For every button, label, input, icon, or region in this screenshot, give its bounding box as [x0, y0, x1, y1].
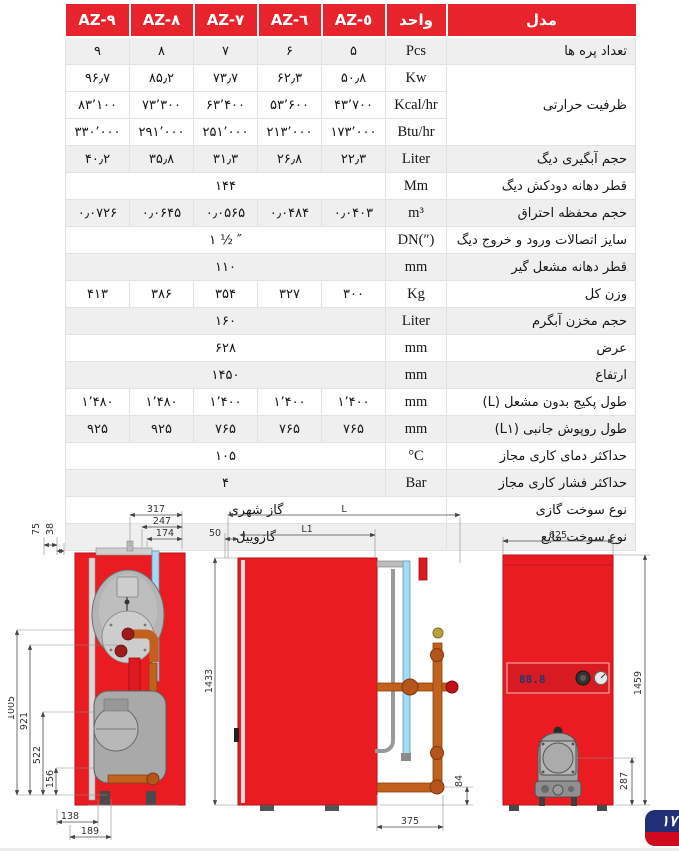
leg — [509, 805, 519, 811]
row-value-merged: ۱۴۵۰ — [66, 362, 386, 389]
row-label: سایز اتصالات ورود و خروج دیگ — [447, 227, 636, 254]
row-unit: Pcs — [386, 37, 447, 65]
stem-fitting — [125, 600, 130, 605]
pipe-elbow — [147, 773, 159, 785]
valve-handwheel — [115, 645, 127, 657]
row-value: ۸ — [130, 37, 194, 65]
row-value: ۵۰٫۸ — [322, 65, 386, 92]
dim-label: 138 — [61, 811, 79, 822]
table-row: ۱۴۴Mmقطر دهانه دودکش دیگ — [66, 173, 636, 200]
pipe-flange — [431, 649, 444, 662]
row-value: ۴۱۳ — [66, 281, 130, 308]
leg — [146, 791, 156, 805]
col-header-az9: AZ-٩ — [66, 4, 130, 37]
row-value: ۸۵٫۲ — [130, 65, 194, 92]
row-label: تعداد پره ها — [447, 37, 636, 65]
row-unit: Kw — [386, 65, 447, 92]
junction-box — [117, 577, 138, 597]
leg — [325, 805, 339, 811]
row-value: ۷۳٫۷ — [194, 65, 258, 92]
row-label: حداکثر دمای کاری مجاز — [447, 443, 636, 470]
sensor-pipe — [375, 569, 393, 751]
row-value: ۲۱۳٬۰۰۰ — [258, 119, 322, 146]
row-value: ۵ — [322, 37, 386, 65]
spec-table: AZ-٩ AZ-٨ AZ-٧ AZ-٦ AZ-٥ واحد مدل ۹۸۷۶۵P… — [65, 4, 636, 551]
table-row: ۱ ½ ″DN(″)سایز اتصالات ورود و خروج دیگ — [66, 227, 636, 254]
table-row: ۹۶٫۷۸۵٫۲۷۳٫۷۶۲٫۳۵۰٫۸Kwظرفیت حرارتی — [66, 65, 636, 92]
side-tab — [234, 728, 239, 742]
row-value: ۴۳٬۷۰۰ — [322, 92, 386, 119]
row-unit: DN(″) — [386, 227, 447, 254]
row-value-merged: ۱۶۰ — [66, 308, 386, 335]
row-value: ۳۲۷ — [258, 281, 322, 308]
row-value-merged: ۱۴۴ — [66, 173, 386, 200]
pipe-flange — [431, 747, 444, 760]
row-value: ۳۱٫۳ — [194, 146, 258, 173]
row-value: ۱٬۴۰۰ — [194, 389, 258, 416]
pipe-fitting — [401, 753, 411, 761]
dim-label: 375 — [401, 816, 419, 827]
row-label: حجم محفظه احتراق — [447, 200, 636, 227]
dim-label: 522 — [32, 746, 43, 764]
col-header-az5: AZ-٥ — [322, 4, 386, 37]
dim-label: 317 — [147, 504, 165, 515]
table-row: ۱۴۵۰mmارتفاع — [66, 362, 636, 389]
burner-foot — [539, 797, 545, 806]
housing-detail — [104, 699, 128, 711]
row-value: ۰٫۰۴۸۴ — [258, 200, 322, 227]
dim-label: 38 — [45, 523, 56, 535]
safety-pipe — [419, 558, 427, 580]
row-value: ۷۳٬۳۰۰ — [130, 92, 194, 119]
col-header-az7: AZ-٧ — [194, 4, 258, 37]
row-unit: Bar — [386, 470, 447, 497]
row-value-merged: ۴ — [66, 470, 386, 497]
temperature-display: 88.8 — [519, 673, 546, 686]
table-row: ۴۱۳۳۸۶۳۵۴۳۲۷۳۰۰Kgوزن کل — [66, 281, 636, 308]
row-value: ۰٫۰۷۲۶ — [66, 200, 130, 227]
dim-label: 287 — [619, 772, 630, 790]
row-value: ۷۶۵ — [194, 416, 258, 443]
dim-label: 189 — [81, 826, 99, 837]
row-unit: Mm — [386, 173, 447, 200]
copper-riser — [433, 643, 442, 791]
cold-water-pipe — [403, 561, 410, 757]
valve-handwheel — [122, 628, 134, 640]
row-value: ۶ — [258, 37, 322, 65]
row-label: طول پکیج بدون مشعل (L) — [447, 389, 636, 416]
burner-detail — [553, 785, 563, 795]
row-label: وزن کل — [447, 281, 636, 308]
drawing-front-view: 88.8 625 287 1459 — [483, 503, 679, 851]
row-unit: Kg — [386, 281, 447, 308]
dim-label: 1459 — [633, 671, 644, 695]
burner-detail — [541, 785, 549, 793]
badge-red-stripe — [645, 832, 679, 846]
row-unit: mm — [386, 362, 447, 389]
row-label: حداکثر فشار کاری مجاز — [447, 470, 636, 497]
leg — [260, 805, 274, 811]
row-unit: Kcal/hr — [386, 92, 447, 119]
row-value: ۳۳۰٬۰۰۰ — [66, 119, 130, 146]
row-value: ۰٫۰۵۶۵ — [194, 200, 258, 227]
dim-label: 174 — [156, 528, 174, 539]
row-value: ۲۹۱٬۰۰۰ — [130, 119, 194, 146]
row-unit: mm — [386, 389, 447, 416]
row-value: ۱٬۴۰۰ — [258, 389, 322, 416]
col-header-unit: واحد — [386, 4, 447, 37]
row-value: ۱٬۴۸۰ — [130, 389, 194, 416]
row-label: قطر دهانه دودکش دیگ — [447, 173, 636, 200]
row-unit: °C — [386, 443, 447, 470]
row-value: ۲۵۱٬۰۰۰ — [194, 119, 258, 146]
col-header-az8: AZ-٨ — [130, 4, 194, 37]
row-value: ۷ — [194, 37, 258, 65]
burner-detail — [568, 786, 574, 792]
row-value: ۶۲٫۳ — [258, 65, 322, 92]
row-unit: Liter — [386, 308, 447, 335]
row-value: ۰٫۰۶۴۵ — [130, 200, 194, 227]
row-label: حجم آبگیری دیگ — [447, 146, 636, 173]
row-value-merged: ۱۰۵ — [66, 443, 386, 470]
pipe-elbow — [430, 780, 444, 794]
row-value: ۲۲٫۳ — [322, 146, 386, 173]
valve-body — [402, 679, 418, 695]
body-edge-strip — [241, 560, 245, 803]
row-value: ۴۰٫۲ — [66, 146, 130, 173]
row-value: ۲۶٫۸ — [258, 146, 322, 173]
row-value: ۹۶٫۷ — [66, 65, 130, 92]
row-unit: m³ — [386, 200, 447, 227]
catalog-page: AZ-٩ AZ-٨ AZ-٧ AZ-٦ AZ-٥ واحد مدل ۹۸۷۶۵P… — [0, 0, 679, 851]
burner-foot — [571, 797, 577, 806]
dim-label: 156 — [45, 770, 56, 788]
dim-label: 75 — [31, 523, 42, 535]
leg — [100, 791, 110, 805]
row-value: ۹ — [66, 37, 130, 65]
drawing-rear-view: 317 247 174 75 38 1005 921 522 156 138 — [8, 503, 208, 851]
row-unit: mm — [386, 254, 447, 281]
row-value: ۳۰۰ — [322, 281, 386, 308]
spec-table-header: AZ-٩ AZ-٨ AZ-٧ AZ-٦ AZ-٥ واحد مدل — [66, 4, 636, 37]
page-number-badge: ۱۷ — [645, 810, 679, 846]
row-value: ۱٬۴۰۰ — [322, 389, 386, 416]
row-unit: mm — [386, 335, 447, 362]
row-label: حجم مخزن آبگرم — [447, 308, 636, 335]
row-value-merged: ۱ ½ ″ — [66, 227, 386, 254]
page-number: ۱۷ — [645, 810, 679, 832]
row-unit: Liter — [386, 146, 447, 173]
table-row: ۱۶۰Literحجم مخزن آبگرم — [66, 308, 636, 335]
table-row: ۱۰۵°Cحداکثر دمای کاری مجاز — [66, 443, 636, 470]
row-value-merged: ۱۱۰ — [66, 254, 386, 281]
row-value: ۵۳٬۶۰۰ — [258, 92, 322, 119]
row-label: عرض — [447, 335, 636, 362]
dim-label: 247 — [153, 516, 171, 527]
row-label: ظرفیت حرارتی — [447, 65, 636, 146]
dim-label: 1433 — [205, 669, 215, 693]
row-value: ۰٫۰۴۰۳ — [322, 200, 386, 227]
row-value: ۳۸۶ — [130, 281, 194, 308]
table-row: ۴۰٫۲۳۵٫۸۳۱٫۳۲۶٫۸۲۲٫۳Literحجم آبگیری دیگ — [66, 146, 636, 173]
table-row: ۹۲۵۹۲۵۷۶۵۷۶۵۷۶۵mmطول روپوش جانبی (L۱) — [66, 416, 636, 443]
col-header-az6: AZ-٦ — [258, 4, 322, 37]
spec-table-body: ۹۸۷۶۵Pcsتعداد پره ها۹۶٫۷۸۵٫۲۷۳٫۷۶۲٫۳۵۰٫۸… — [66, 37, 636, 551]
row-unit: mm — [386, 416, 447, 443]
dim-label: 50 — [209, 528, 221, 539]
row-label: قطر دهانه مشعل گیر — [447, 254, 636, 281]
table-row: ۱٬۴۸۰۱٬۴۸۰۱٬۴۰۰۱٬۴۰۰۱٬۴۰۰mmطول پکیج بدون… — [66, 389, 636, 416]
row-value: ۷۶۵ — [258, 416, 322, 443]
row-label: ارتفاع — [447, 362, 636, 389]
burner-port — [543, 743, 573, 773]
drawing-side-view: L L1 50 1433 375 84 — [205, 503, 480, 851]
table-row: ۹۸۷۶۵Pcsتعداد پره ها — [66, 37, 636, 65]
table-row: ۰٫۰۷۲۶۰٫۰۶۴۵۰٫۰۵۶۵۰٫۰۴۸۴۰٫۰۴۰۳m³حجم محفظ… — [66, 200, 636, 227]
row-value: ۳۵٫۸ — [130, 146, 194, 173]
boiler-body — [238, 558, 377, 805]
valve-handwheel — [446, 681, 458, 693]
row-value: ۸۳٬۱۰۰ — [66, 92, 130, 119]
table-row: ۱۱۰mmقطر دهانه مشعل گیر — [66, 254, 636, 281]
dim-label: 921 — [19, 712, 30, 730]
col-header-model: مدل — [447, 4, 636, 37]
row-value: ۱٬۴۸۰ — [66, 389, 130, 416]
dim-label: L — [341, 504, 347, 515]
dim-label: 625 — [549, 530, 567, 541]
row-unit: Btu/hr — [386, 119, 447, 146]
brass-valve — [433, 628, 443, 638]
row-value: ۷۶۵ — [322, 416, 386, 443]
row-value: ۶۳٬۴۰۰ — [194, 92, 258, 119]
table-row: ۴Barحداکثر فشار کاری مجاز — [66, 470, 636, 497]
table-row: ۶۲۸mmعرض — [66, 335, 636, 362]
top-pipe — [96, 548, 152, 555]
row-value: ۹۲۵ — [66, 416, 130, 443]
dim-label: 84 — [454, 775, 465, 787]
dim-label: L1 — [301, 524, 312, 535]
row-value: ۳۵۴ — [194, 281, 258, 308]
dim-label: 1005 — [8, 696, 17, 720]
row-value: ۱۷۳٬۰۰۰ — [322, 119, 386, 146]
leg — [597, 805, 607, 811]
row-value-merged: ۶۲۸ — [66, 335, 386, 362]
row-value: ۹۲۵ — [130, 416, 194, 443]
row-label: طول روپوش جانبی (L۱) — [447, 416, 636, 443]
